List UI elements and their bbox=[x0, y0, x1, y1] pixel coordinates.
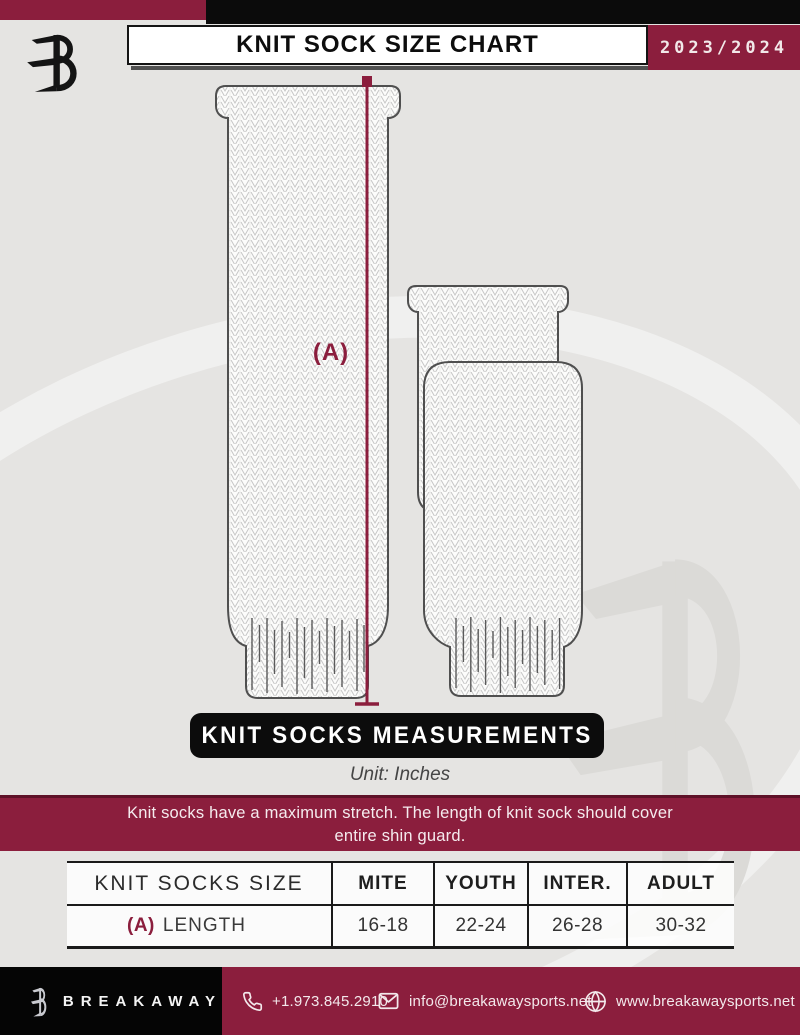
footer-website[interactable]: www.breakawaysports.net bbox=[584, 967, 795, 1035]
large-sock-shape bbox=[216, 86, 400, 698]
footer: BREAKAWAY +1.973.845.2910 info@breakaway… bbox=[0, 967, 800, 1035]
footer-brand-name: BREAKAWAY bbox=[63, 993, 222, 1010]
footer-website-text: www.breakawaysports.net bbox=[616, 993, 795, 1010]
footer-phone-text: +1.973.845.2910 bbox=[272, 993, 388, 1010]
table-header-mite: MITE bbox=[331, 863, 433, 906]
season-label: 2023/2024 bbox=[660, 38, 788, 58]
length-label: LENGTH bbox=[163, 915, 246, 937]
table-header-inter: INTER. bbox=[527, 863, 626, 906]
stretch-note-line2: entire shin guard. bbox=[334, 825, 465, 848]
table-header-size: KNIT SOCKS SIZE bbox=[67, 863, 331, 906]
unit-label: Unit: Inches bbox=[0, 764, 800, 786]
sock-diagram bbox=[180, 70, 620, 715]
measurements-banner: KNIT SOCKS MEASUREMENTS bbox=[190, 713, 604, 758]
size-table: KNIT SOCKS SIZE MITE YOUTH INTER. ADULT … bbox=[67, 861, 734, 949]
page-title-box: KNIT SOCK SIZE CHART bbox=[127, 25, 648, 65]
breakaway-footer-logo-icon bbox=[30, 984, 50, 1018]
footer-phone[interactable]: +1.973.845.2910 bbox=[242, 967, 388, 1035]
table-header-adult: ADULT bbox=[626, 863, 734, 906]
top-strip-maroon bbox=[0, 0, 206, 20]
table-row-length-label: (A) LENGTH bbox=[67, 906, 331, 946]
stretch-note-line1: Knit socks have a maximum stretch. The l… bbox=[127, 802, 673, 825]
length-value-youth: 22-24 bbox=[433, 906, 527, 946]
front-sock-shape bbox=[424, 362, 582, 696]
footer-email[interactable]: info@breakawaysports.net bbox=[377, 967, 592, 1035]
footer-email-text: info@breakawaysports.net bbox=[409, 993, 592, 1010]
measurement-label-a: (A) bbox=[296, 339, 366, 367]
breakaway-logo-icon bbox=[24, 27, 88, 95]
table-header-youth: YOUTH bbox=[433, 863, 527, 906]
length-label-prefix: (A) bbox=[127, 915, 155, 937]
top-strip-black bbox=[206, 0, 800, 24]
envelope-icon bbox=[377, 991, 400, 1011]
globe-icon bbox=[584, 990, 607, 1013]
knit-sock-size-chart-page: KNIT SOCK SIZE CHART 2023/2024 (A) KNIT … bbox=[0, 0, 800, 1035]
length-value-mite: 16-18 bbox=[331, 906, 433, 946]
length-value-inter: 26-28 bbox=[527, 906, 626, 946]
page-title: KNIT SOCK SIZE CHART bbox=[236, 31, 539, 59]
length-value-adult: 30-32 bbox=[626, 906, 734, 946]
measurements-banner-title: KNIT SOCKS MEASUREMENTS bbox=[201, 722, 592, 750]
footer-brand-block: BREAKAWAY bbox=[0, 967, 222, 1035]
phone-icon bbox=[242, 991, 263, 1012]
stretch-note-banner: Knit socks have a maximum stretch. The l… bbox=[0, 795, 800, 851]
season-badge: 2023/2024 bbox=[648, 25, 800, 70]
